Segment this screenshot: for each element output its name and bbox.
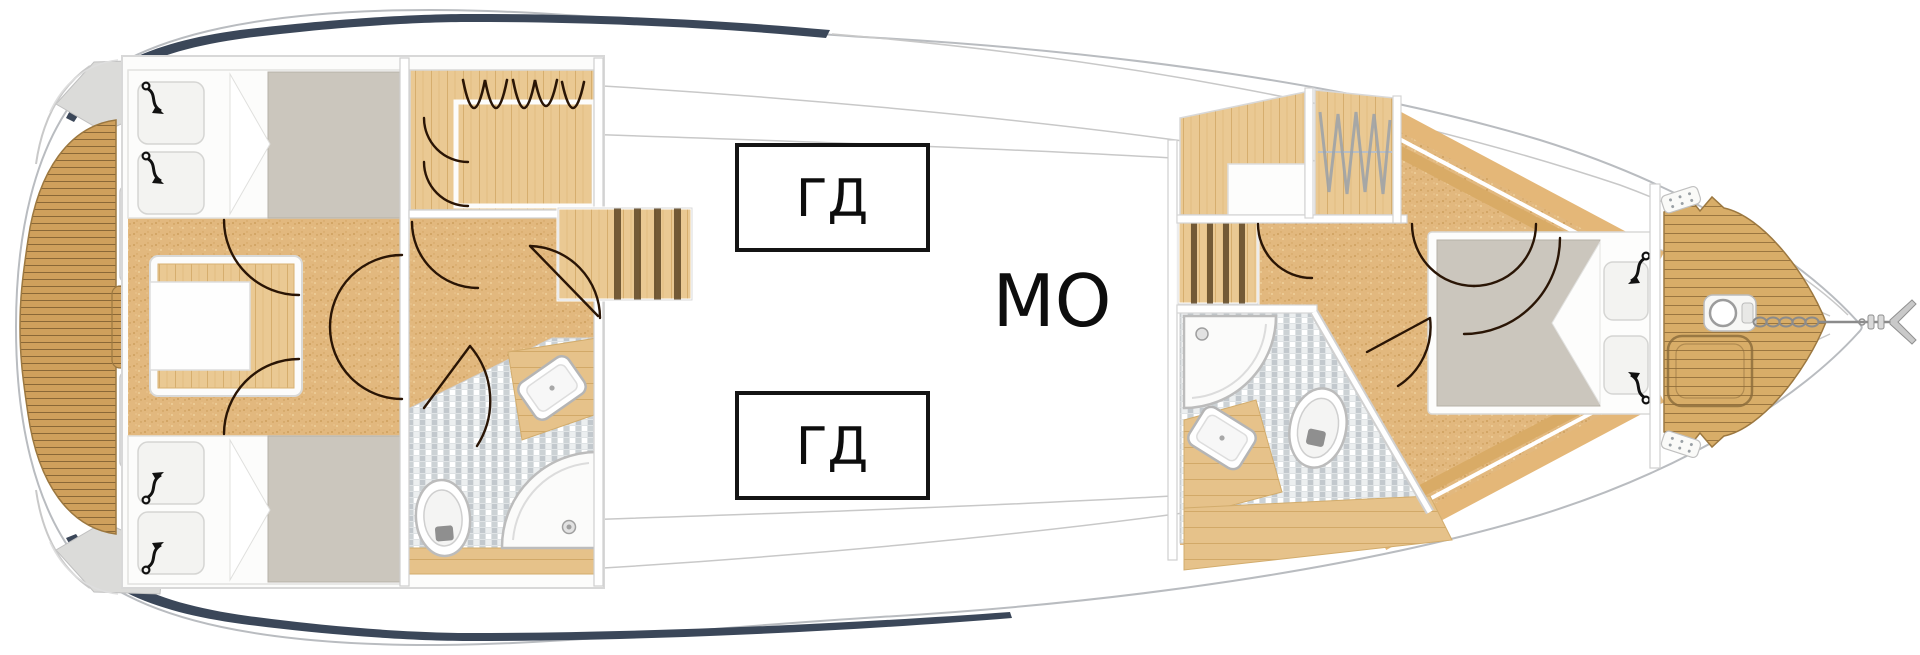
engine-box-2: ГД <box>737 393 928 498</box>
engine-room-fwd-bulkhead <box>1168 140 1177 560</box>
nightstand-panel <box>138 512 204 574</box>
floor-plan-svg: ГД ГД МО <box>0 0 1920 655</box>
vip-nightstand <box>1604 262 1648 320</box>
vip-nightstand <box>1604 336 1648 394</box>
wardrobe-forward <box>1315 90 1395 215</box>
staircase-forward <box>1178 218 1258 304</box>
vanity-counter <box>1228 164 1305 215</box>
yacht-lower-deck-plan: ГД ГД МО <box>0 0 1920 655</box>
mattress <box>268 436 404 582</box>
nightstand-panel <box>138 82 204 144</box>
engine-box-label: ГД <box>796 169 868 229</box>
aft-center-cabinet <box>150 256 302 396</box>
bow-bulkhead <box>1650 184 1660 468</box>
nightstand-panel <box>138 152 204 214</box>
engine-box-label: ГД <box>796 417 868 477</box>
engine-box-1: ГД <box>737 145 928 250</box>
aft-berth-port <box>128 70 404 218</box>
wardrobe-aft <box>410 70 595 210</box>
drain-icon <box>1196 328 1208 340</box>
aft-berth-starboard <box>128 436 404 584</box>
windlass-icon <box>1704 295 1756 331</box>
mattress <box>268 72 404 218</box>
nightstand-panel <box>138 442 204 504</box>
engine-room-label: МО <box>993 259 1112 343</box>
staircase-aft <box>558 208 692 300</box>
vip-berth <box>1428 232 1658 414</box>
cabinet-table <box>150 282 250 370</box>
bow-deck <box>1660 185 1916 458</box>
